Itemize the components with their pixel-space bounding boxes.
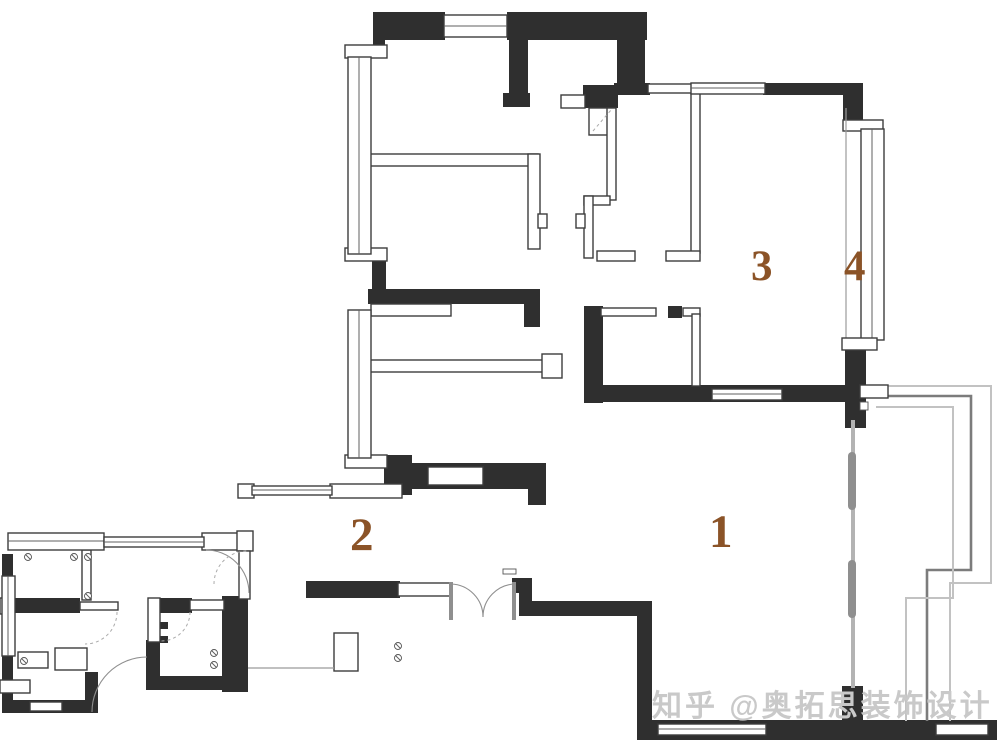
door-swing-arc xyxy=(92,657,147,712)
floor-plan-drawing xyxy=(0,0,997,744)
door-post xyxy=(512,582,516,620)
door-swing-arc xyxy=(85,612,117,644)
room-label-balcony: 4 xyxy=(844,245,866,288)
room-label-dining-room: 2 xyxy=(350,512,374,559)
door-swing-arc xyxy=(451,584,483,617)
door-swing-arc xyxy=(483,584,515,617)
room-label-bedroom: 3 xyxy=(751,245,773,288)
watermark-text: 知乎 @奥拓思装饰设计 xyxy=(652,681,993,725)
sliding-door xyxy=(848,402,868,688)
balcony-railing xyxy=(860,385,991,721)
door-post xyxy=(449,582,453,620)
room-label-living-room: 1 xyxy=(709,509,733,556)
floor-plan-page: 1 2 3 4 知乎 @奥拓思装饰设计 xyxy=(0,0,997,744)
